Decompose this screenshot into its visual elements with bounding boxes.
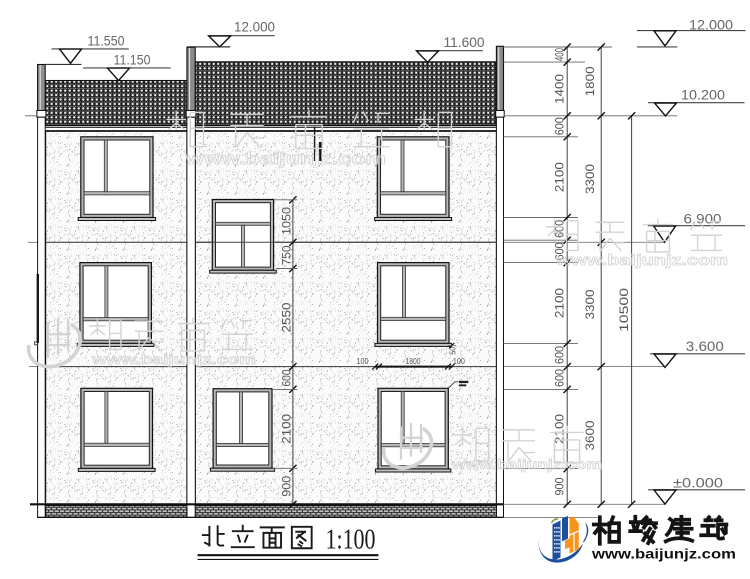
svg-text:www.baijunjz.com: www.baijunjz.com <box>91 352 256 367</box>
svg-text:2100: 2100 <box>555 162 567 192</box>
svg-text:2100: 2100 <box>282 414 294 444</box>
svg-text:3600: 3600 <box>585 420 597 450</box>
svg-text:600: 600 <box>282 370 294 387</box>
svg-text:10500: 10500 <box>619 288 631 332</box>
svg-text:11.600: 11.600 <box>444 35 485 50</box>
svg-text:10.200: 10.200 <box>681 88 725 103</box>
svg-text:2550: 2550 <box>282 303 294 333</box>
svg-text:11.150: 11.150 <box>114 53 151 68</box>
svg-text:900: 900 <box>282 476 294 497</box>
svg-text:900: 900 <box>555 477 567 495</box>
svg-text:100: 100 <box>357 357 369 366</box>
svg-text:www.baijunjz.com: www.baijunjz.com <box>555 252 728 269</box>
svg-text:11.550: 11.550 <box>88 33 125 48</box>
svg-text:100: 100 <box>453 357 465 366</box>
svg-text:600: 600 <box>555 117 567 135</box>
svg-text:www.baijunjz.com: www.baijunjz.com <box>185 149 386 168</box>
svg-text:1:100: 1:100 <box>326 525 376 556</box>
svg-text:400: 400 <box>555 48 567 61</box>
svg-text:3.600: 3.600 <box>686 339 724 354</box>
svg-text:12.000: 12.000 <box>689 17 733 32</box>
svg-text:600: 600 <box>555 346 567 364</box>
svg-text:2100: 2100 <box>555 288 567 318</box>
svg-text:1800: 1800 <box>585 66 597 96</box>
svg-text:12.000: 12.000 <box>234 19 275 34</box>
svg-text:±0.000: ±0.000 <box>673 475 723 490</box>
svg-text:1800: 1800 <box>406 357 421 366</box>
svg-text:6.900: 6.900 <box>684 211 722 226</box>
svg-text:1050: 1050 <box>282 207 294 235</box>
svg-text:www.baijunjz.com: www.baijunjz.com <box>451 457 602 472</box>
svg-text:600: 600 <box>555 369 567 387</box>
svg-text:www.baijunjz.com: www.baijunjz.com <box>591 547 736 562</box>
svg-text:1400: 1400 <box>555 74 567 104</box>
svg-text:750: 750 <box>282 245 294 265</box>
svg-text:3300: 3300 <box>585 164 597 194</box>
svg-text:3300: 3300 <box>585 289 597 319</box>
